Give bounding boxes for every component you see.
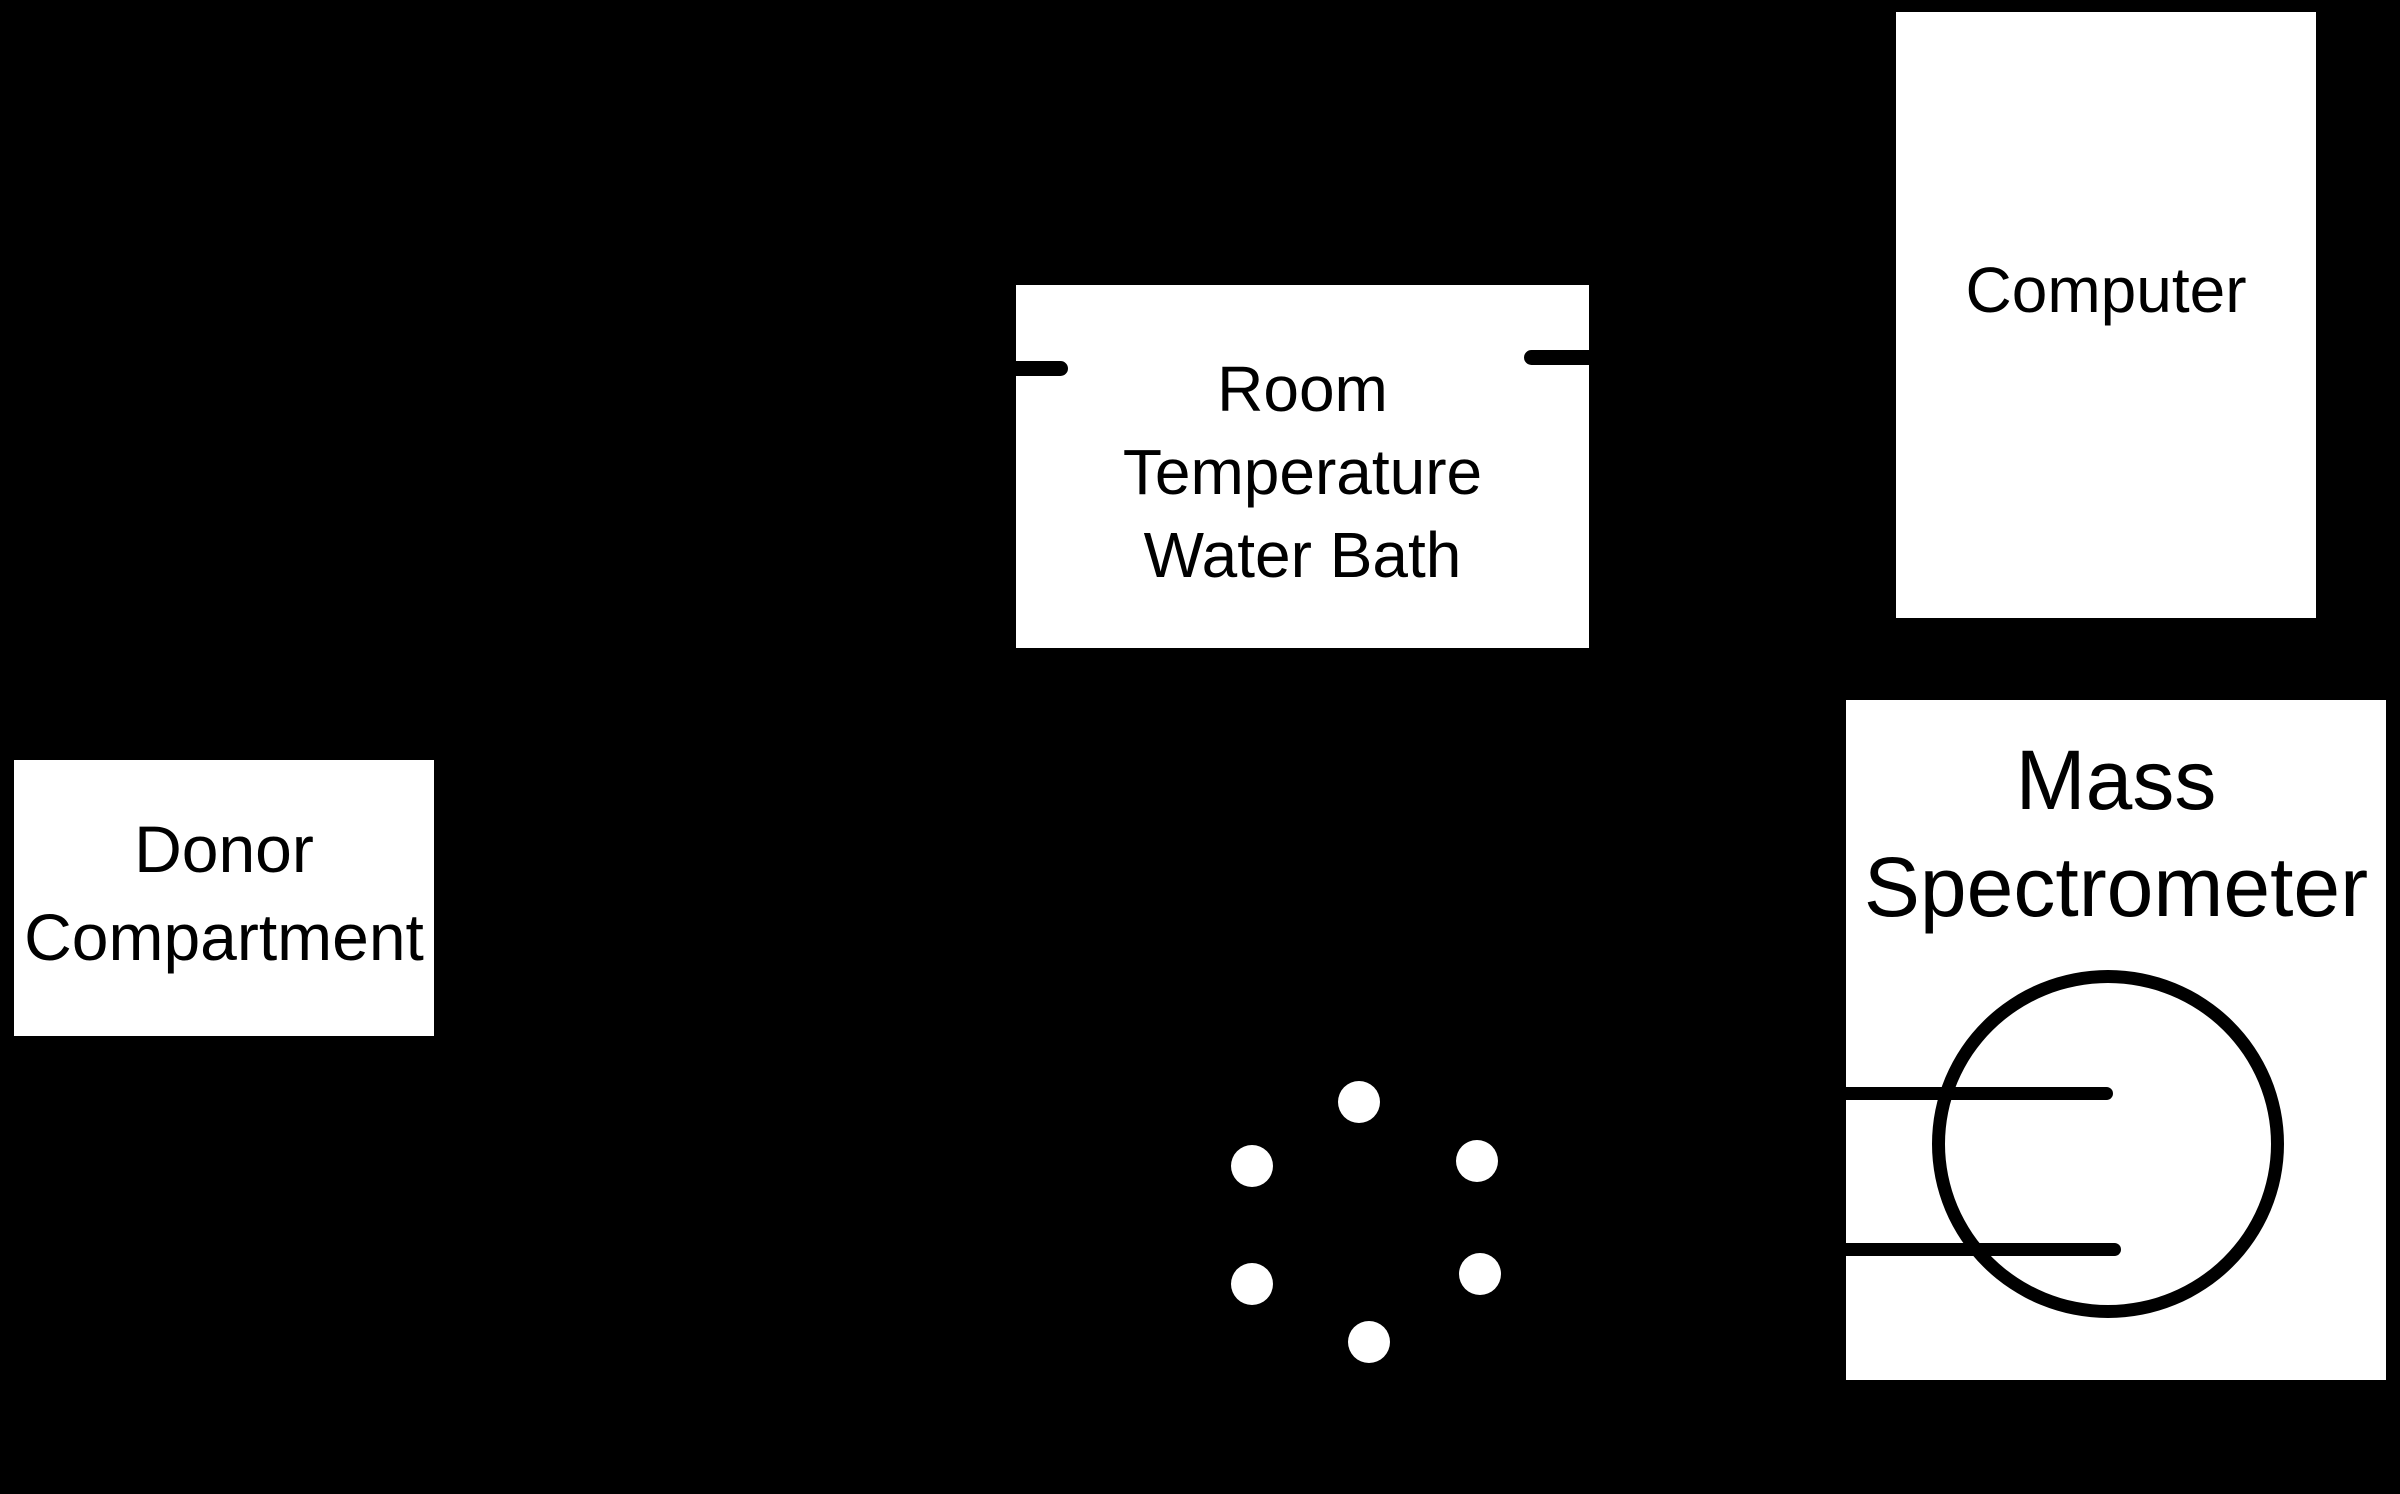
sample-dot <box>1338 1081 1380 1123</box>
water-bath-box: Room Temperature Water Bath <box>1016 285 1589 648</box>
sample-dot <box>1231 1145 1273 1187</box>
sample-dot <box>1456 1140 1498 1182</box>
sample-dot <box>1459 1253 1501 1295</box>
mass-spectrometer-label-line2: Spectrometer <box>1846 834 2386 941</box>
sample-dot <box>1231 1263 1273 1305</box>
donor-compartment-label-line2: Compartment <box>14 893 434 981</box>
computer-label: Computer <box>1896 250 2316 330</box>
mass-spectrometer-label-line1: Mass <box>1846 727 2386 834</box>
water-bath-label-line2: Temperature <box>1016 431 1589 514</box>
inlet-line-upper-icon <box>1846 1087 2113 1100</box>
mass-spectrometer-box: Mass Spectrometer <box>1846 700 2386 1380</box>
diagram-canvas: Donor Compartment Room Temperature Water… <box>0 0 2400 1494</box>
water-bath-label-line1: Room <box>1016 348 1589 431</box>
water-bath-label: Room Temperature Water Bath <box>1016 348 1589 597</box>
ion-source-circle-icon <box>1932 970 2284 1318</box>
computer-label-line1: Computer <box>1896 250 2316 330</box>
mass-spectrometer-label: Mass Spectrometer <box>1846 727 2386 941</box>
computer-box: Computer <box>1896 12 2316 618</box>
inlet-line-lower-icon <box>1846 1243 2121 1256</box>
donor-compartment-label: Donor Compartment <box>14 805 434 981</box>
water-bath-label-line3: Water Bath <box>1016 514 1589 597</box>
sample-dot <box>1348 1321 1390 1363</box>
donor-compartment-label-line1: Donor <box>14 805 434 893</box>
donor-compartment-box: Donor Compartment <box>14 760 434 1036</box>
